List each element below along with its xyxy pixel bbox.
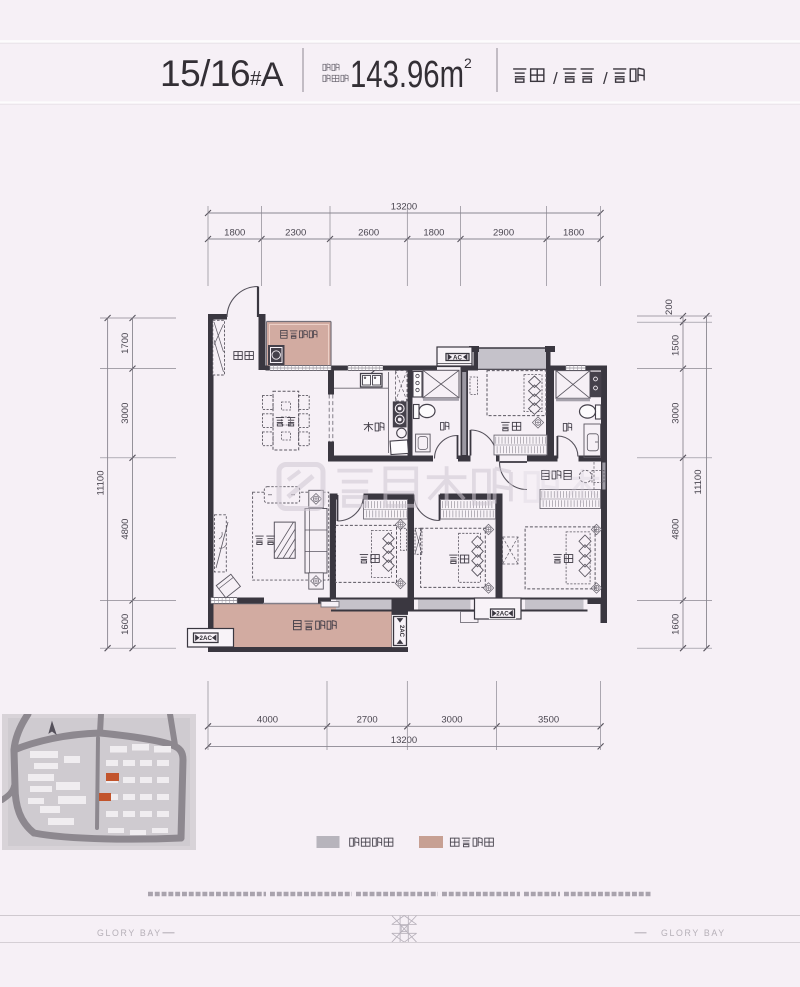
svg-text:GLORY BAY: GLORY BAY bbox=[661, 928, 726, 938]
svg-text:200: 200 bbox=[664, 299, 675, 315]
svg-text:1800: 1800 bbox=[224, 228, 245, 239]
svg-text:1600: 1600 bbox=[120, 614, 131, 635]
svg-text:1800: 1800 bbox=[563, 228, 584, 239]
svg-text:2: 2 bbox=[464, 55, 472, 71]
svg-text:2900: 2900 bbox=[493, 228, 514, 239]
svg-text:3000: 3000 bbox=[441, 715, 462, 726]
svg-text:/: / bbox=[553, 69, 558, 88]
svg-text:11100: 11100 bbox=[693, 469, 704, 494]
svg-text:2300: 2300 bbox=[285, 228, 306, 239]
svg-text:13200: 13200 bbox=[391, 735, 417, 746]
svg-text:/: / bbox=[603, 69, 608, 88]
svg-text:4800: 4800 bbox=[671, 519, 682, 540]
svg-text:1800: 1800 bbox=[423, 228, 444, 239]
svg-text:15/16#A: 15/16#A bbox=[160, 53, 284, 94]
svg-text:2AC: 2AC bbox=[200, 635, 213, 642]
svg-text:4800: 4800 bbox=[120, 519, 131, 540]
svg-text:1700: 1700 bbox=[120, 333, 131, 354]
svg-text:143.96m: 143.96m bbox=[350, 54, 464, 96]
svg-text:3000: 3000 bbox=[120, 403, 131, 424]
svg-text:13200: 13200 bbox=[391, 202, 417, 213]
svg-text:2AC: 2AC bbox=[398, 625, 404, 638]
svg-text:11100: 11100 bbox=[96, 470, 107, 495]
svg-text:2600: 2600 bbox=[358, 228, 379, 239]
svg-text:1500: 1500 bbox=[671, 335, 682, 356]
svg-text:1600: 1600 bbox=[671, 614, 682, 635]
svg-text:4000: 4000 bbox=[257, 715, 278, 726]
svg-text:3500: 3500 bbox=[538, 715, 559, 726]
svg-text:3000: 3000 bbox=[671, 403, 682, 424]
svg-text:GLORY BAY: GLORY BAY bbox=[97, 928, 162, 938]
svg-text:2AC: 2AC bbox=[496, 611, 509, 618]
svg-text:AC: AC bbox=[453, 354, 462, 361]
svg-text:2700: 2700 bbox=[357, 715, 378, 726]
